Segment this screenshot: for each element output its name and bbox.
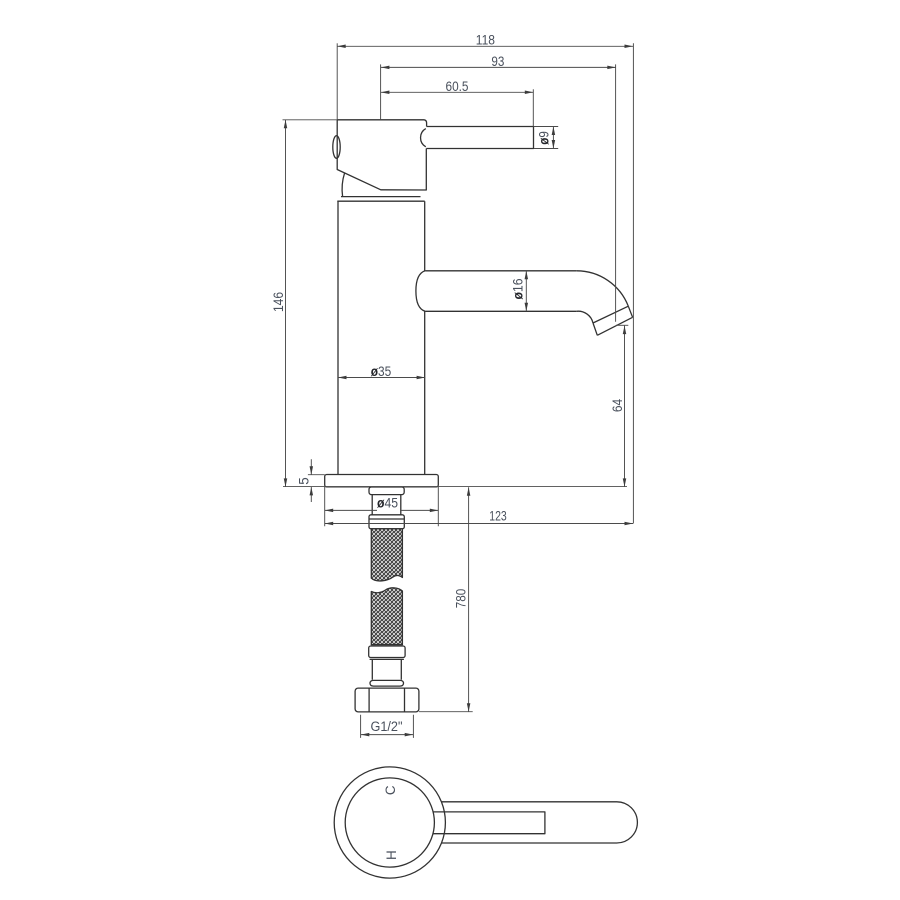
svg-text:146: 146 [271, 292, 286, 312]
svg-text:5: 5 [297, 477, 312, 484]
svg-text:123: 123 [489, 508, 507, 523]
svg-text:60.5: 60.5 [446, 79, 469, 94]
svg-text:ø35: ø35 [371, 364, 392, 379]
svg-text:ø9: ø9 [537, 131, 552, 145]
svg-text:93: 93 [491, 54, 504, 69]
svg-text:G1/2": G1/2" [371, 719, 403, 734]
svg-text:C: C [383, 785, 398, 795]
svg-text:64: 64 [610, 398, 625, 412]
svg-text:ø45: ø45 [377, 496, 398, 511]
svg-text:780: 780 [454, 589, 469, 609]
svg-text:ø16: ø16 [511, 279, 526, 300]
svg-text:118: 118 [476, 32, 495, 47]
svg-text:H: H [384, 850, 399, 860]
